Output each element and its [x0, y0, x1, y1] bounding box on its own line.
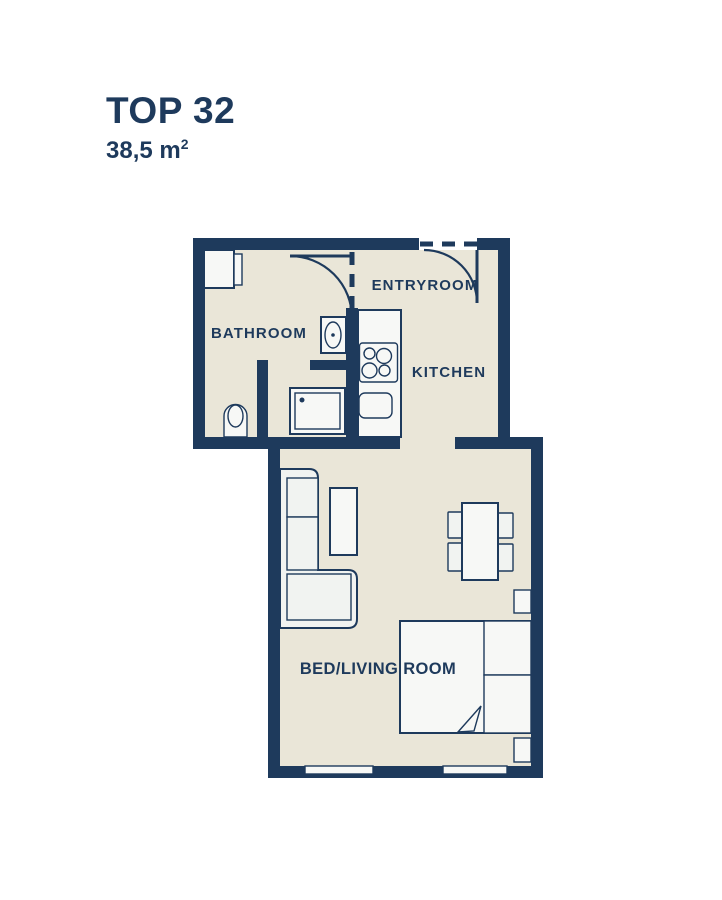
window [305, 766, 373, 774]
window [443, 766, 507, 774]
kitchen-sink [359, 393, 392, 418]
dining-chair [448, 512, 463, 538]
washing-machine [204, 250, 242, 288]
sofa-cushion [287, 574, 351, 620]
washing-machine-body [204, 250, 234, 288]
wall-right-lower [531, 437, 543, 778]
wall-left-lower [268, 449, 280, 778]
wall-mid-left [193, 437, 400, 449]
pillow [484, 621, 531, 675]
nightstand-top [514, 590, 531, 613]
dining-chair [497, 544, 513, 571]
burner-small-2 [379, 365, 390, 376]
washbasin [321, 317, 346, 353]
shower [290, 388, 345, 434]
shower-drain [300, 398, 305, 403]
room-label-bed-living-room: BED/LIVING ROOM [300, 660, 456, 678]
nightstand-bottom [514, 738, 531, 762]
burner-large-2 [362, 363, 377, 378]
side-table [330, 488, 357, 555]
sofa-cushion [287, 478, 318, 517]
room-label-bathroom: BATHROOM [211, 325, 307, 342]
wall-mid-right [455, 437, 543, 449]
toilet-bowl [228, 405, 243, 427]
dining-table [462, 503, 498, 580]
wall-stub-vertical [257, 360, 268, 449]
washbasin-drain [331, 333, 335, 337]
room-label-kitchen: KITCHEN [412, 364, 486, 381]
floor-plan: BATHROOM ENTRYROOM KITCHEN BED/LIVING RO… [0, 0, 722, 900]
wall-bathroom-kitchen-divider [346, 308, 358, 449]
burner-large-1 [377, 349, 392, 364]
page: TOP 32 38,5 m2 [0, 0, 722, 900]
wall-right-upper [498, 238, 510, 449]
pillow [484, 675, 531, 733]
dining-chair [497, 513, 513, 538]
room-label-entryroom: ENTRYROOM [372, 277, 479, 294]
kitchen-counter [358, 310, 401, 437]
floor-passage [400, 437, 455, 449]
dining-chair [448, 543, 463, 571]
wall-stub-horizontal [310, 360, 346, 370]
toilet [224, 405, 247, 438]
stove [360, 343, 398, 382]
sofa-cushion [287, 517, 318, 570]
washing-machine-door [234, 254, 242, 285]
burner-small-1 [364, 348, 375, 359]
